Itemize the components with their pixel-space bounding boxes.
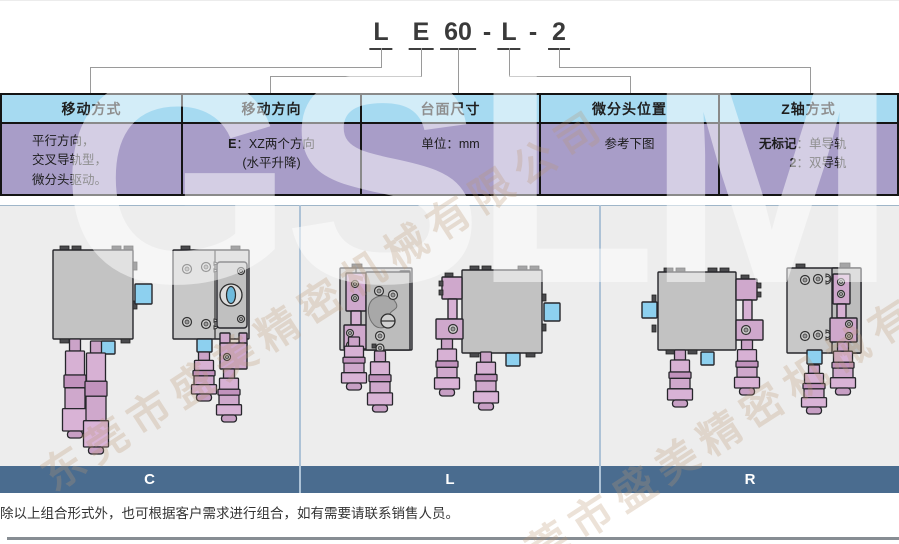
cell-z-axis: 无标记：单导轨 2：双导轨 <box>718 124 897 194</box>
model-separator-2: - <box>525 20 541 48</box>
model-field-2: E <box>409 20 434 50</box>
model-separator-1: - <box>479 20 495 48</box>
panel-divider-1 <box>299 205 301 493</box>
footer-note: 除以上组合形式外，也可根据客户需求进行组合，如有需要请联系销售人员。 <box>0 502 459 522</box>
header-movement-direction: 移动方向 <box>181 95 360 124</box>
model-field-1: L <box>369 20 392 50</box>
spec-table: 移动方式 移动方向 台面尺寸 微分头位置 Z轴方式 平行方向， 交叉导轨型， 微… <box>0 93 899 196</box>
stage-drawing-variant-l <box>300 205 600 466</box>
catalog-page: L E 60 - L - 2 移动方式 移动方向 台面尺寸 微分头位置 Z轴方式… <box>0 0 899 544</box>
cell-micrometer-position: 参考下图 <box>539 124 718 194</box>
cell-movement-direction: E：XZ两个方向 (水平升降) <box>181 124 360 194</box>
header-movement-type: 移动方式 <box>2 95 181 124</box>
model-field-3: 60 <box>440 20 476 50</box>
variant-bar-c: C <box>0 466 299 493</box>
cell-table-size: 单位：mm <box>360 124 539 194</box>
bottom-rule <box>7 537 899 540</box>
model-field-5: 2 <box>548 20 570 50</box>
panel-divider-2 <box>599 205 601 493</box>
header-table-size: 台面尺寸 <box>360 95 539 124</box>
variant-bar-r: R <box>601 466 899 493</box>
model-field-4: L <box>497 20 520 50</box>
variant-bar-l: L <box>301 466 599 493</box>
header-micrometer-position: 微分头位置 <box>539 95 718 124</box>
stage-drawing-variant-r <box>600 205 899 466</box>
cell-movement-type: 平行方向， 交叉导轨型， 微分头驱动。 <box>2 124 181 194</box>
header-z-axis: Z轴方式 <box>718 95 897 124</box>
top-rule <box>0 0 899 1</box>
stage-drawing-variant-c <box>0 205 300 466</box>
